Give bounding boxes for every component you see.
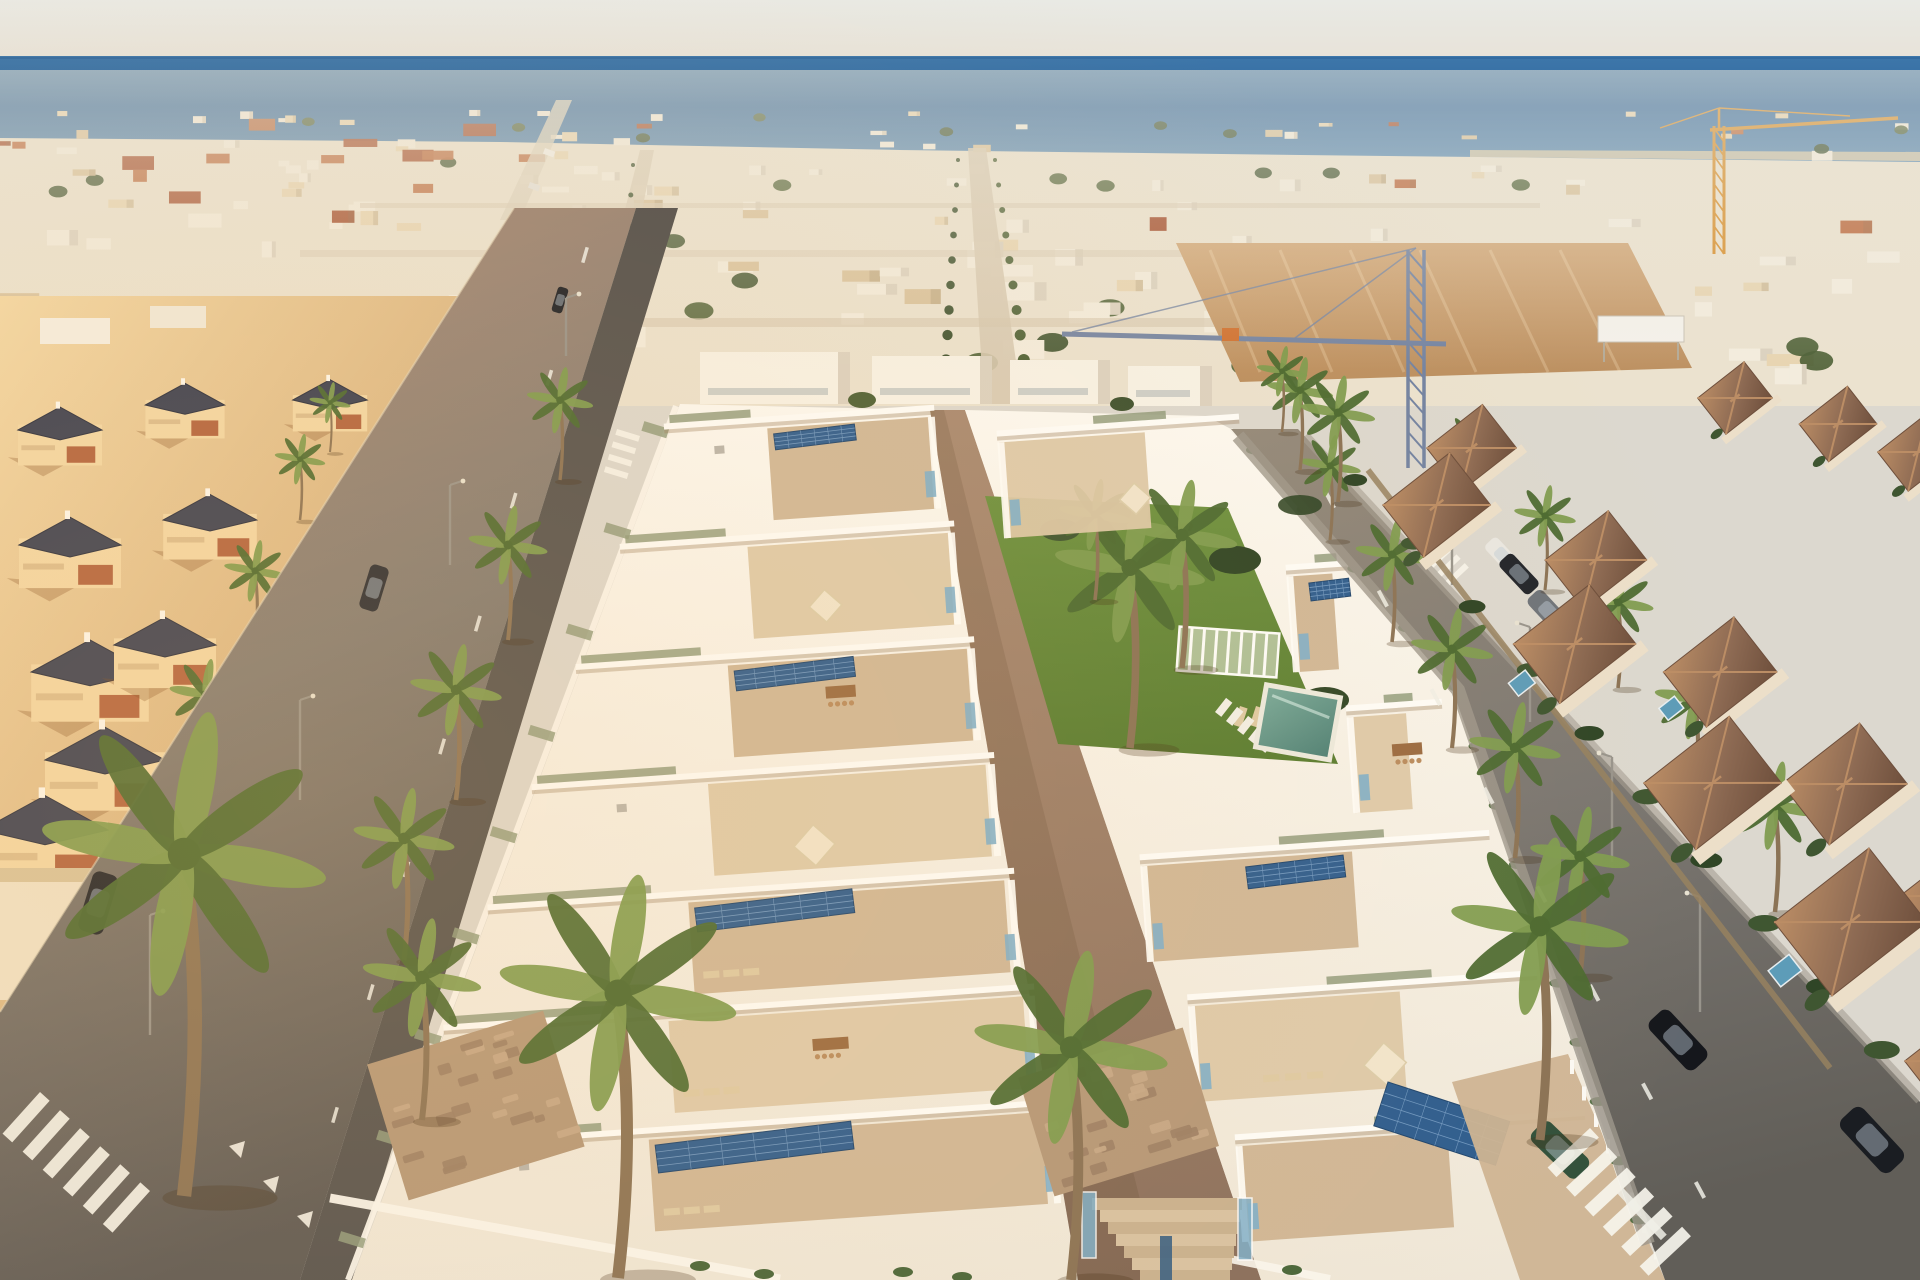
- aerial-render-canvas: [0, 0, 1920, 1280]
- screenshot-root: [0, 0, 1920, 1280]
- sunlight-overlay: [0, 0, 1920, 1280]
